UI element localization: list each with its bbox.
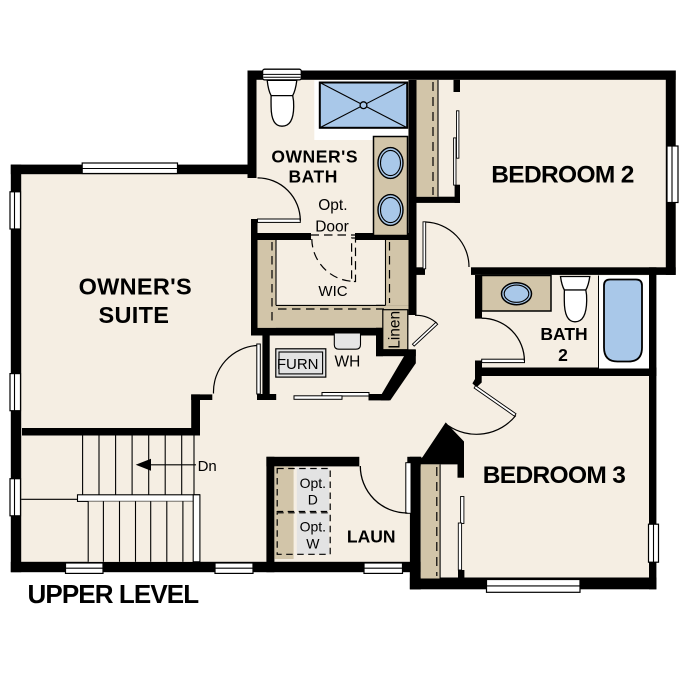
svg-text:OWNER'S: OWNER'S [271, 147, 358, 167]
svg-text:LAUN: LAUN [347, 527, 396, 547]
svg-text:FURN: FURN [277, 356, 319, 373]
svg-text:W: W [306, 536, 320, 552]
svg-text:Dn: Dn [198, 458, 217, 475]
svg-text:2: 2 [558, 345, 568, 365]
svg-text:Opt.: Opt. [300, 519, 326, 535]
svg-text:Opt.: Opt. [318, 197, 347, 214]
svg-text:Door: Door [315, 219, 349, 236]
svg-text:BATH: BATH [540, 324, 587, 344]
svg-text:UPPER LEVEL: UPPER LEVEL [28, 579, 200, 609]
svg-text:Opt.: Opt. [300, 475, 326, 491]
svg-text:WIC: WIC [318, 283, 347, 300]
svg-text:WH: WH [334, 354, 360, 371]
svg-text:BATH: BATH [288, 167, 338, 187]
svg-text:OWNER'S: OWNER'S [79, 274, 192, 300]
svg-text:D: D [308, 492, 318, 508]
svg-text:SUITE: SUITE [99, 302, 170, 328]
svg-text:BEDROOM 2: BEDROOM 2 [491, 162, 634, 189]
svg-text:Linen: Linen [386, 311, 403, 349]
svg-text:BEDROOM 3: BEDROOM 3 [483, 462, 626, 489]
